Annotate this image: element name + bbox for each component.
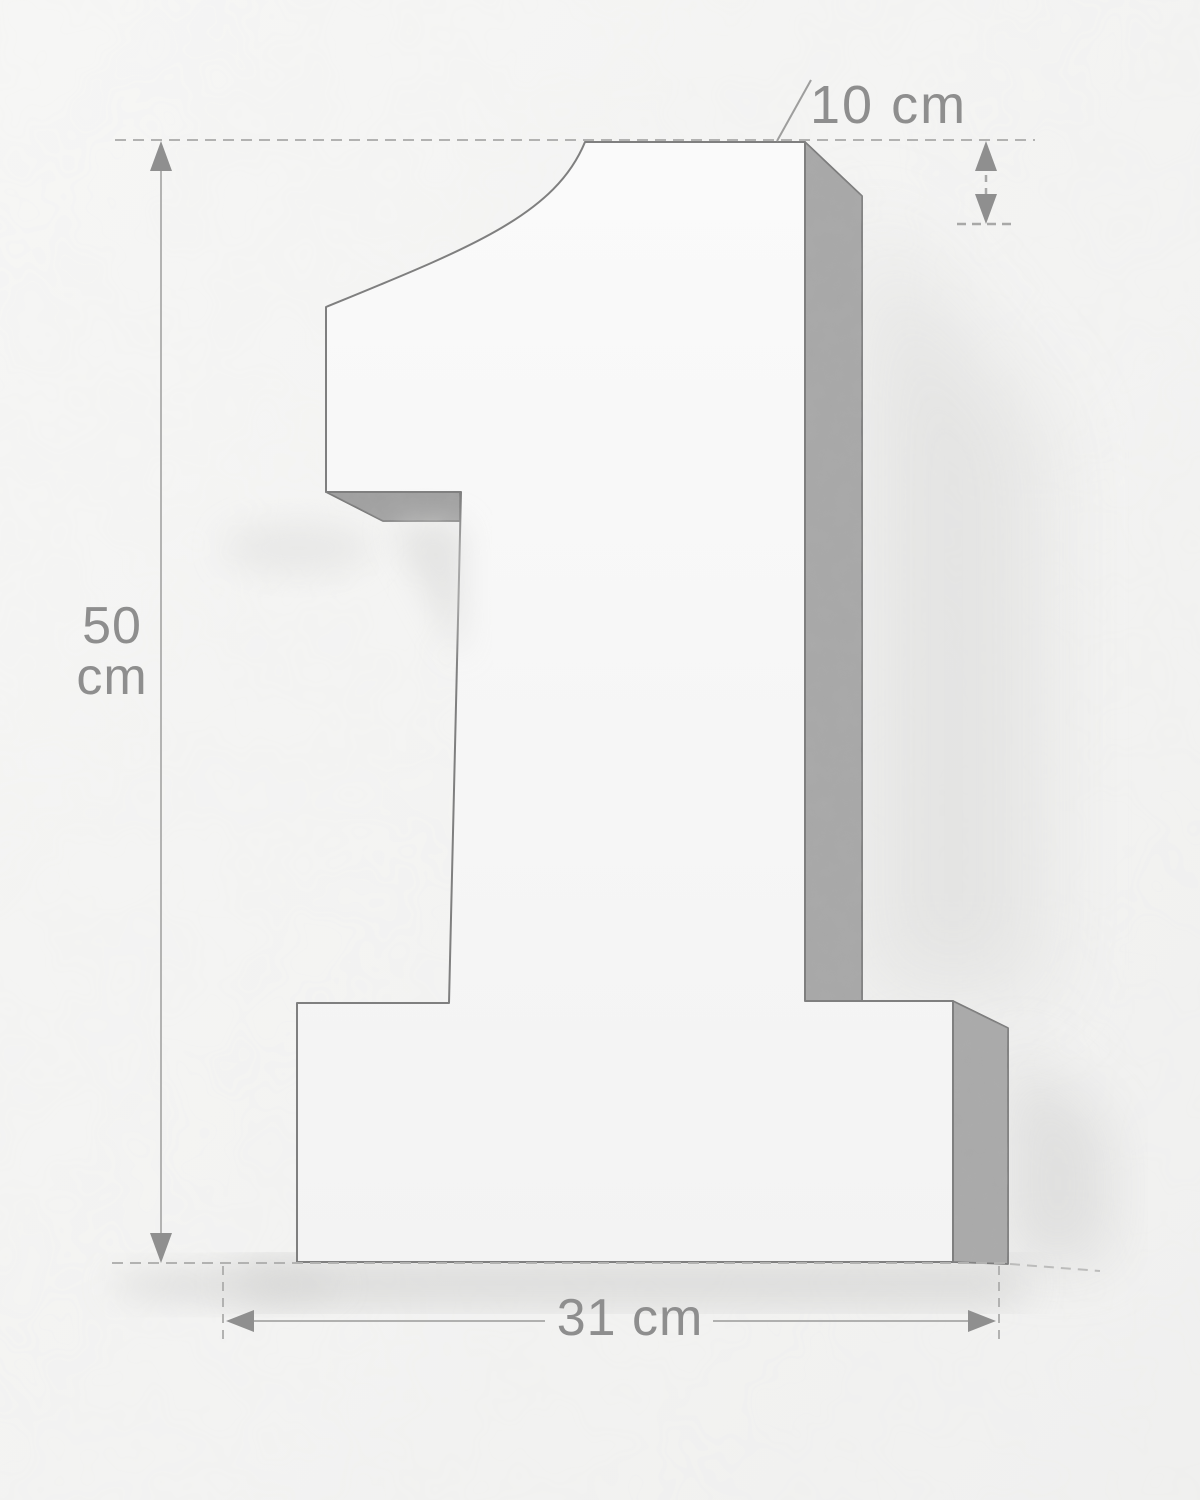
height-dimension-label: 50 cm xyxy=(42,601,182,703)
height-dimension-value: 50 xyxy=(42,601,182,652)
height-dimension-unit: cm xyxy=(42,652,182,703)
numeral-dimension-drawing xyxy=(0,0,1200,1500)
width-dimension-label: 31 cm xyxy=(520,1288,740,1348)
base-side-face xyxy=(953,1001,1008,1264)
serif-wall-shadow xyxy=(223,520,373,576)
depth-dimension-label: 10 cm xyxy=(810,74,967,136)
stem-side-face xyxy=(805,142,862,1001)
illustration-canvas: 10 cm 50 cm 31 cm xyxy=(0,0,1200,1500)
base-under-shadow-left xyxy=(110,1267,340,1303)
